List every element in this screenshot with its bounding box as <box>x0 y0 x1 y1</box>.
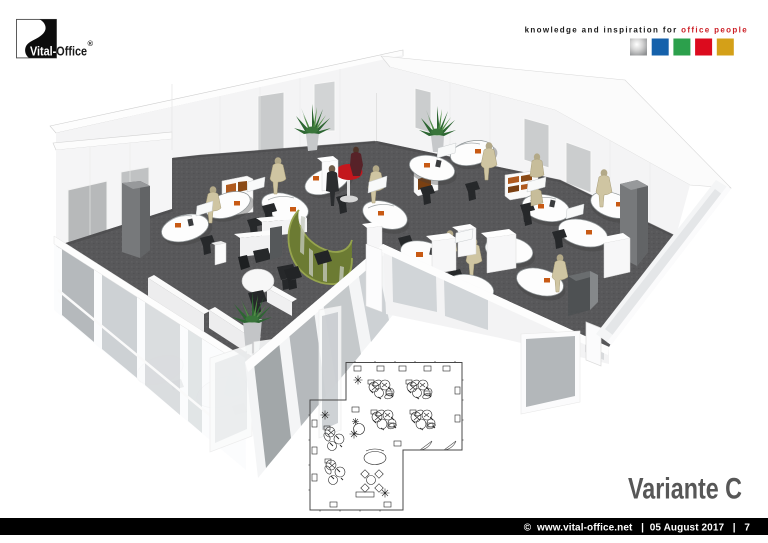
svg-text:®: ® <box>88 39 94 48</box>
svg-text:Variante C: Variante C <box>628 473 742 506</box>
svg-text:© www.vital-office.net | 0: © www.vital-office.net | 05 August 2017 … <box>524 523 751 534</box>
svg-text:Vital-Office: Vital-Office <box>30 43 87 58</box>
svg-text:knowledge and inspiration for: knowledge and inspiration for office peo… <box>525 26 748 35</box>
